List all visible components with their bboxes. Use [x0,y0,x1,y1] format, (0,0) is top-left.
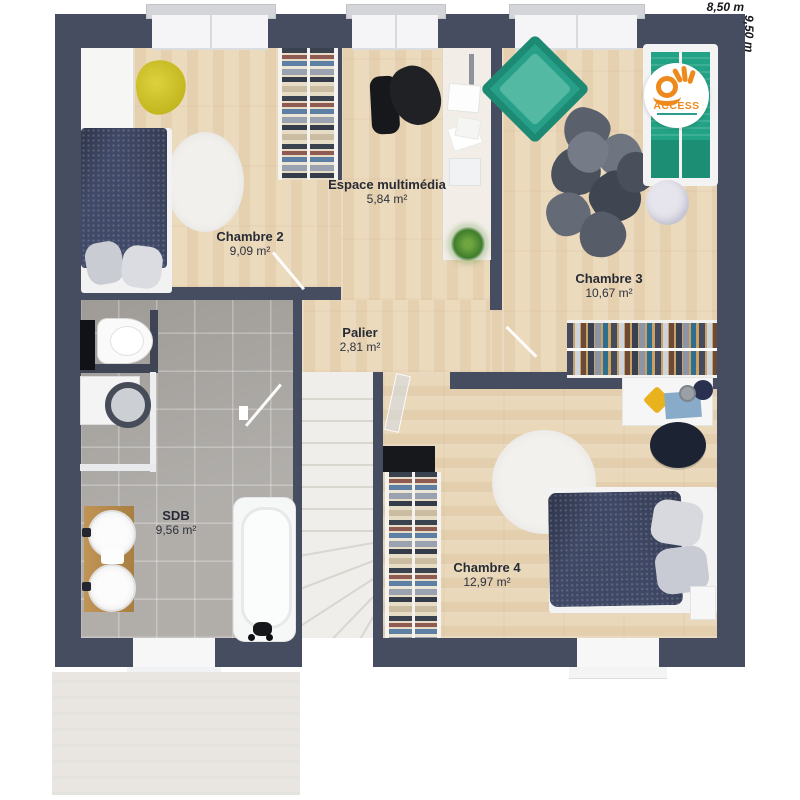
window-divider [210,15,212,48]
desk [442,48,491,260]
room-name: Chambre 2 [170,230,330,244]
bathtub-tap [266,634,273,641]
room-name: SDB [96,509,256,523]
washing-machine-door [105,382,151,428]
chair [650,422,706,468]
window-espace [352,15,438,50]
desk-stool-top [693,380,713,400]
dimension-height-label: 9,50 m [742,15,756,52]
room-area: 2,81 m² [280,340,440,354]
stair-winder [322,617,373,639]
round-rug [166,132,244,232]
bed [81,128,172,293]
wardrobe-shelf-top [383,446,435,472]
stair-winder [302,542,373,561]
room-area: 9,56 m² [96,523,256,537]
nightstand [690,586,716,620]
dimension-width-label: 8,50 m [640,0,744,14]
paper [454,116,481,140]
window-divider [395,15,397,48]
window-divider [576,15,578,48]
faucet [82,582,91,591]
wall-right [717,14,745,667]
doorway-floor-chambre3 [490,310,502,372]
room-area: 12,97 m² [407,575,567,589]
logo-finger [687,70,696,85]
pouf [646,180,689,225]
pillow [120,244,165,291]
soap-tray [101,549,124,564]
bathtub-tap [248,634,255,641]
room-label-palier: Palier 2,81 m² [280,326,440,354]
sink [88,564,136,612]
room-name: Chambre 4 [407,561,567,575]
toilet-bowl [110,326,144,356]
wardrobe-shelves [278,48,338,180]
wardrobe-rail [412,472,415,638]
wall-bottom-right-segment [373,638,745,667]
room-label-espace: Espace multimédia 5,84 m² [307,178,467,206]
window-chambre4 [577,638,659,668]
window-sdb [133,638,215,668]
partition-laundry-shelf [80,464,156,471]
door-handle [239,406,248,420]
closet [81,48,134,131]
wall-stairs-right [373,372,383,638]
clothes-rack-rail [567,348,717,351]
logo-underline [657,113,697,115]
room-name: Palier [280,326,440,340]
toilet-cistern [80,320,95,370]
washing-machine [80,376,140,425]
window-sill-chambre4 [569,667,667,679]
faucet [82,528,91,537]
room-area: 10,67 m² [529,286,689,300]
desk-cup [679,385,696,402]
stairs [302,372,373,638]
floor-plan: ACCESS Chambre 2 9,09 [0,0,800,800]
room-name: Chambre 3 [529,272,689,286]
toilet [97,318,153,364]
room-label-sdb: SDB 9,56 m² [96,509,256,537]
wardrobe-shelves [385,472,441,638]
partition-laundry-vertical [150,372,156,472]
room-label-chambre2: Chambre 2 9,09 m² [170,230,330,258]
room-area: 5,84 m² [307,192,467,206]
room-area: 9,09 m² [170,244,330,258]
clothes-rack [567,320,717,378]
lower-roof [52,672,300,795]
room-label-chambre4: Chambre 4 12,97 m² [407,561,567,589]
wardrobe-rail [307,48,310,180]
logo-text: ACCESS [644,100,709,112]
keyboard [447,83,481,114]
stair-winder [302,560,373,598]
access-logo: ACCESS [644,63,709,128]
pillow [649,497,705,548]
plant [450,226,486,262]
wall-left [55,14,81,667]
room-label-chambre3: Chambre 3 10,67 m² [529,272,689,300]
room-name: Espace multimédia [307,178,467,192]
stair-treads [302,378,373,538]
window-chambre2 [152,15,268,50]
desk [622,377,713,426]
